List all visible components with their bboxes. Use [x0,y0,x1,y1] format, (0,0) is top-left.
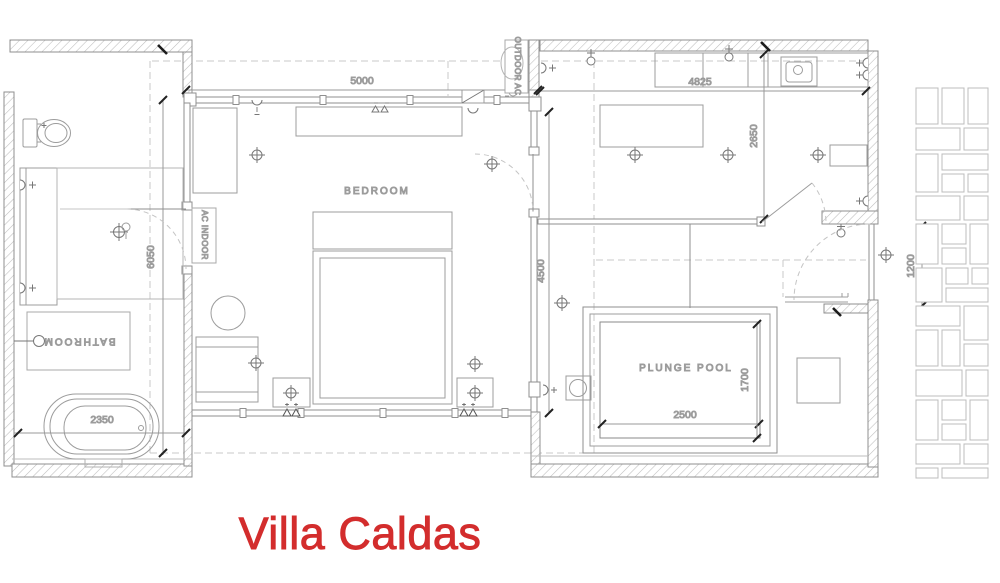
svg-text:4500: 4500 [535,259,547,283]
bathtub-icon [44,394,159,467]
svg-text:2500: 2500 [673,409,697,421]
plunge-pool-label: PLUNGE POOL [639,363,733,374]
dimension-living-width: 4825 [536,76,870,95]
ceiling-light-icon [554,247,894,311]
cabinet [196,337,258,402]
toilet-icon [23,119,71,147]
bathroom: BATHROOM 2350 6050 [14,96,190,467]
ac-indoor-label: AC INDOOR [200,210,209,260]
bathroom-door [60,209,186,269]
ceiling-light-icon [110,223,128,241]
outdoor-ac-label: OUTDOOR AC [513,37,522,96]
ceiling-light-icon [627,147,826,163]
svg-text:1700: 1700 [739,368,751,392]
roof-overhang-dashed-lines [150,61,866,453]
terrace-door [762,183,826,222]
stool [211,296,245,330]
kitchen-counter [655,53,868,87]
bedroom: BEDROOM AC INDOOR [182,75,553,417]
wardrobe [193,108,237,193]
stone-wall-pattern [916,88,988,478]
floor-plan-page: BATHROOM 2350 6050 [0,0,1000,583]
svg-text:2350: 2350 [90,414,114,426]
bed-icon [313,212,452,404]
outdoor-table [797,358,840,403]
dimension-living-depth: 2650 [748,50,768,223]
svg-text:2650: 2650 [748,124,760,148]
floor-plan-drawing: BATHROOM 2350 6050 [0,0,1000,583]
svg-text:5000: 5000 [350,75,374,87]
ceiling-lamp-icon [14,336,45,347]
living-area: OUTDOOR AC 4825 2650 [501,37,870,223]
bedroom-label: BEDROOM [344,186,410,197]
wall-sconce-icon [20,180,36,293]
bench [785,293,848,302]
dimension-bathroom-depth: 6050 [145,96,167,457]
section-arrows [158,42,841,316]
dimension-bathtub: 2350 [14,414,190,437]
dimension-pool-length: 2500 [598,409,763,428]
dimension-bedroom-width: 5000 [182,75,542,94]
svg-text:1200: 1200 [905,254,917,278]
plan-title: Villa Caldas [239,508,482,559]
svg-text:4825: 4825 [688,76,712,88]
side-entry-door [794,224,870,300]
bathroom-label: BATHROOM [42,335,115,346]
svg-text:6050: 6050 [145,245,157,269]
pool-pump [566,376,591,400]
bedroom-door [475,154,533,212]
island-table [600,105,703,147]
side-cabinet [830,145,867,166]
